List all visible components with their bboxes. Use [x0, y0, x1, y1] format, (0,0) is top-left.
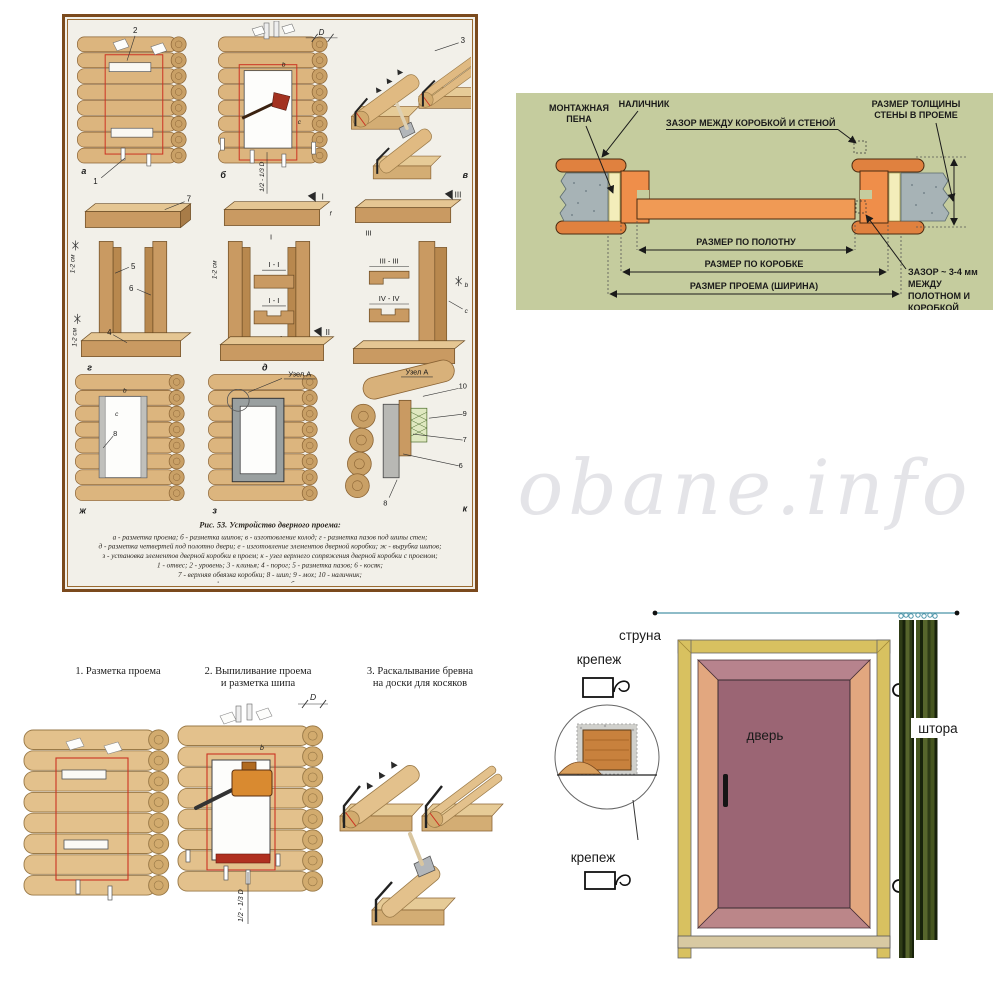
three-steps-panel: 1. Разметка проема 2. Выпиливание проема… [10, 658, 510, 1000]
door-leaf [718, 680, 850, 908]
string-wire [653, 611, 960, 616]
label-9: 9 [463, 409, 467, 418]
label-rom-i: I [322, 193, 324, 202]
hook-icon [893, 880, 899, 892]
label-rom-ii: II [326, 328, 330, 337]
dim-leaf-label: РАЗМЕР ПО ПОЛОТНУ [696, 237, 796, 247]
caption-line: д - разметка четвертей под полотно двери… [98, 543, 441, 551]
foam-label: МОНТАЖНАЯ [549, 103, 609, 113]
label-uzel-a: Узел А [288, 369, 311, 378]
trim-top [852, 159, 924, 172]
step1-wall-drawing [24, 730, 169, 900]
foam-strip [889, 173, 900, 221]
fastener-top: крепеж [577, 652, 629, 697]
step2-title: и разметка шипа [221, 678, 296, 689]
fastener-bottom: крепеж [571, 850, 630, 889]
label-sec-i: I - I [269, 296, 280, 305]
trim-label: НАЛИЧНИК [619, 99, 670, 109]
label-zh: ж [78, 505, 86, 515]
label-6: 6 [129, 284, 134, 293]
label-dim-d: D [319, 28, 325, 37]
fig53-wall-zh-drawing: b c 8 ж [75, 374, 184, 515]
label-sec-iii: III - III [380, 256, 399, 265]
wall-block [560, 173, 608, 221]
gap-leaf-label: ЗАЗОР ~ 3-4 мм [908, 267, 978, 277]
fastener-top-label: крепеж [577, 652, 622, 667]
caption-line: 1 - отвес; 2 - уровень; 3 - клинья; 4 - … [157, 562, 383, 570]
label-b-small: b [465, 282, 469, 289]
door-installation-panel: струна крепеж крепеж дверь [545, 598, 1000, 1000]
thickness-label: СТЕНЫ В ПРОЕМЕ [874, 110, 957, 120]
label-8: 8 [383, 499, 387, 508]
label-sec-iv: IV - IV [379, 294, 400, 303]
step3-splitting-drawing [331, 752, 504, 925]
label-z: з [212, 505, 217, 515]
caption-line: а - разметка проема; б - разметка шипов;… [113, 533, 428, 541]
fig53-illustration: 2 1 а D 1/2 - 1/3 D b c б [69, 21, 471, 583]
string-label: струна [619, 628, 661, 643]
step1-title: 1. Разметка проема [75, 666, 161, 677]
door-handle [723, 774, 728, 807]
fastener-bottom-icon [585, 872, 615, 889]
label-f: f [330, 211, 333, 218]
hook-icon [614, 681, 629, 692]
label-7: 7 [463, 435, 467, 444]
label-rom-i: I [270, 232, 272, 241]
gap-wall-label: ЗАЗОР МЕЖДУ КОРОБКОЙ И СТЕНОЙ [666, 117, 835, 128]
watermark-text: obane.info [495, 418, 995, 558]
door-frame-section-diagram: РАЗМЕР ПО ПОЛОТНУ РАЗМЕР ПО КОРОБКЕ РАЗМ… [516, 93, 993, 310]
thickness-label: РАЗМЕР ТОЛЩИНЫ [872, 99, 961, 109]
fastener-bottom-label: крепеж [571, 850, 616, 865]
label-b-small: b [260, 745, 264, 752]
label-5: 5 [131, 262, 136, 271]
caption-line: з - установка элементов дверной коробки … [101, 552, 437, 560]
dim-frame-label: РАЗМЕР ПО КОРОБКЕ [705, 259, 804, 269]
label-b-small: b [123, 387, 127, 394]
label-8: 8 [113, 429, 117, 438]
detail-circle [555, 705, 659, 840]
label-1: 1 [93, 177, 98, 186]
fig53-log-splitting-drawing: 3 в [343, 36, 471, 180]
label-sec-i: I - I [269, 260, 280, 269]
fig53-wall-a-drawing: 2 1 а [77, 26, 186, 186]
label-12cm: 1-2 см [69, 254, 76, 273]
gap-leaf-label: ПОЛОТНОМ И [908, 291, 970, 301]
step2-title: 2. Выпиливание проема [205, 666, 312, 677]
curtain: штора [893, 613, 965, 958]
fig53-wall-z-drawing: Узел А з [208, 369, 317, 515]
caption-line: 7 - верхняя обвязка коробки; 8 - шип; 9 … [178, 571, 362, 579]
label-dim-d: D [310, 692, 316, 702]
label-uzel-a: Узел А [406, 367, 429, 376]
label-12cm: 1-2 см [71, 327, 78, 346]
door-label: дверь [747, 728, 784, 743]
fig53-frame-parts-e-drawing: III III III - III IV - IV b c е [353, 190, 468, 373]
fig53-book-page-panel: 2 1 а D 1/2 - 1/3 D b c б [62, 14, 478, 592]
fastener-top-icon [583, 678, 613, 697]
caption-line: b - ширина шипа; с - глубина шипа [217, 580, 324, 583]
threshold [678, 936, 890, 948]
gap-leaf-label: КОРОБКОЙ [908, 302, 959, 310]
door-leaf-assembly: дверь [698, 660, 870, 928]
door-frame-section-panel: РАЗМЕР ПО ПОЛОТНУ РАЗМЕР ПО КОРОБКЕ РАЗМ… [516, 93, 993, 310]
label-rom-iii: III [365, 228, 371, 237]
label-2: 2 [133, 26, 138, 35]
foam-strip [609, 173, 620, 221]
label-4: 4 [107, 328, 112, 337]
label-c-small: c [465, 308, 469, 315]
wall-block [901, 173, 949, 221]
fig53-frame-parts-g-drawing: 7 5 6 4 1-2 см 1-2 см г [69, 195, 191, 373]
label-a: а [81, 166, 86, 176]
label-dim-half: 1/2 - 1/3 D [259, 161, 266, 191]
label-dim-half: 1/2 - 1/3 D [238, 889, 245, 922]
foam-label: ПЕНА [566, 114, 592, 124]
three-steps-diagram: 1. Разметка проема 2. Выпиливание проема… [10, 658, 510, 1000]
step3-title: на доски для косяков [373, 678, 467, 689]
door-installation-diagram: струна крепеж крепеж дверь [545, 598, 1000, 1000]
hook-icon [893, 684, 899, 696]
step3-title: 3. Раскалывание бревна [367, 666, 473, 677]
caption-title: Рис. 53. Устройство дверного проема: [199, 520, 341, 529]
label-10: 10 [459, 381, 467, 390]
door-leaf-section [637, 199, 855, 219]
label-6: 6 [459, 461, 463, 470]
label-k: к [463, 504, 468, 514]
fig53-node-k-drawing: Узел А 10 9 7 6 8 к [345, 358, 467, 514]
trim-bottom [556, 221, 626, 234]
dim-opening-label: РАЗМЕР ПРОЕМА (ШИРИНА) [690, 281, 818, 291]
step2-wall-drawing: D b 1/2 - 1/3 D [178, 692, 328, 924]
label-b-small: b [282, 62, 286, 69]
fig53-wall-b-drawing: D 1/2 - 1/3 D b c б [218, 21, 337, 194]
label-7: 7 [187, 195, 192, 204]
label-v: в [463, 170, 469, 180]
gap-leaf-label: МЕЖДУ [908, 279, 942, 289]
label-rom-iii: III [455, 191, 462, 200]
label-3: 3 [461, 36, 466, 45]
fig53-caption: Рис. 53. Устройство дверного проема: а -… [98, 520, 441, 583]
label-g: г [87, 363, 92, 373]
hook-icon [616, 875, 630, 885]
label-12cm: 1-2 см [211, 260, 218, 279]
trim-top [556, 159, 626, 172]
curtain-label: штора [918, 721, 958, 736]
curtain-rings [899, 613, 937, 618]
label-b: б [220, 170, 226, 180]
label-d: д [262, 363, 268, 373]
